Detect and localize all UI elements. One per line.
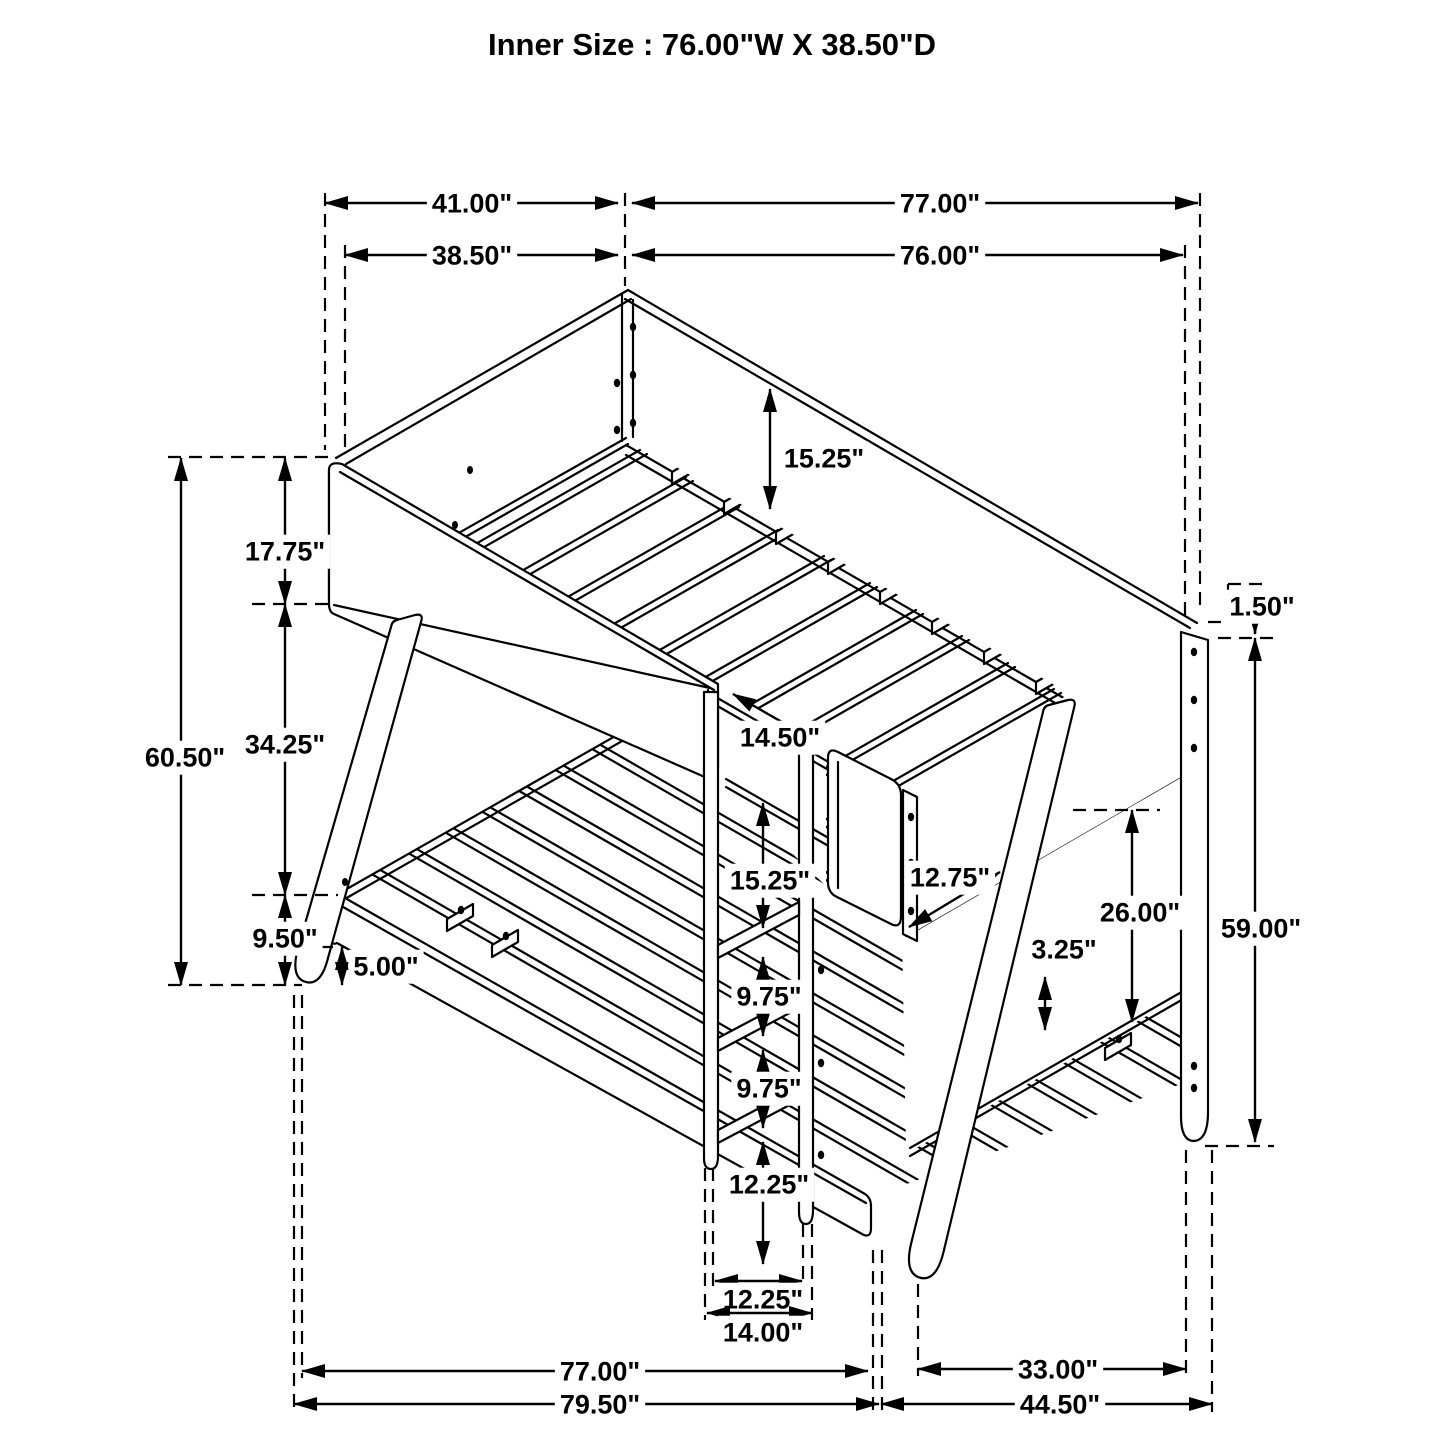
dim-base-length: 77.00" — [302, 1355, 868, 1389]
dim-top-inner-length: 76.00" — [632, 239, 1183, 273]
dim-label-ladder-feet-span: 12.25" — [723, 1285, 803, 1315]
dim-label-base-depth: 33.00" — [1018, 1355, 1098, 1385]
dim-top-outer-width: 41.00" — [325, 187, 618, 221]
dim-label-top-rail-lip: 1.50" — [1229, 592, 1294, 622]
upper-bunk-guard-rail — [828, 750, 901, 925]
dim-label-rung-spacing-upper: 9.75" — [736, 982, 801, 1012]
dim-label-right-side-height: 59.00" — [1221, 914, 1301, 944]
dim-base-depth: 33.00" — [918, 1353, 1186, 1387]
dim-floor-clearance: 5.00" — [342, 947, 424, 985]
dim-label-upper-rail-depth: 15.25" — [784, 444, 864, 474]
dim-label-ladder-lower-section: 12.25" — [729, 1170, 809, 1200]
dim-upper-rail-depth: 15.25" — [770, 389, 869, 509]
dim-bunk-gap-height: 34.25" — [240, 604, 330, 895]
dim-ladder-opening-width: 14.50" — [733, 694, 825, 755]
dim-top-inner-width: 38.50" — [345, 239, 618, 273]
dim-ladder-overall-width: 14.00" — [707, 1313, 812, 1350]
dim-label-base-length: 77.00" — [560, 1357, 640, 1387]
dim-ladder-feet-span: 12.25" — [715, 1281, 808, 1317]
dim-label-floor-clearance: 5.00" — [353, 952, 418, 982]
dim-label-guard-rail-offset: 12.75" — [910, 863, 990, 893]
dim-label-lower-end-panel-height: 26.00" — [1100, 898, 1180, 928]
dim-label-top-outer-width: 41.00" — [432, 189, 512, 219]
dim-base-overall-depth: 44.50" — [881, 1388, 1212, 1422]
dim-overall-height: 60.50" — [140, 458, 230, 985]
dim-label-top-inner-length: 76.00" — [900, 241, 980, 271]
dim-label-rung-spacing-lower: 9.75" — [736, 1074, 801, 1104]
dim-top-rail-lip: 1.50" — [1224, 590, 1299, 634]
dim-label-base-overall-length: 79.50" — [560, 1390, 640, 1420]
dim-label-top-outer-length: 77.00" — [900, 189, 980, 219]
dim-base-overall-length: 79.50" — [294, 1388, 879, 1422]
dim-label-ladder-overall-width: 14.00" — [723, 1318, 803, 1348]
upper-bunk-deck-edge — [714, 696, 832, 848]
dim-top-outer-length: 77.00" — [632, 187, 1198, 221]
dim-label-bunk-gap-height: 34.25" — [245, 730, 325, 760]
diagram-canvas: 41.00" 77.00" 38.50" 76.00" 60.50" 17.75… — [0, 0, 1445, 1445]
dim-right-side-height: 59.00" — [1216, 638, 1306, 1142]
dim-label-overall-height: 60.50" — [145, 743, 225, 773]
dim-upper-rail-height: 17.75" — [240, 458, 330, 604]
dim-label-ladder-top-spacing: 15.25" — [730, 866, 810, 896]
dim-label-ladder-opening-width: 14.50" — [740, 723, 820, 753]
dim-label-top-inner-width: 38.50" — [432, 241, 512, 271]
dim-label-lower-frame-height: 9.50" — [252, 924, 317, 954]
bunk-bed-dimension-diagram: 41.00" 77.00" 38.50" 76.00" 60.50" 17.75… — [0, 0, 1445, 1445]
page-title: Inner Size : 76.00"W X 38.50"D — [488, 27, 936, 62]
dim-label-slat-support-height: 3.25" — [1031, 935, 1096, 965]
dim-label-base-overall-depth: 44.50" — [1020, 1390, 1100, 1420]
dim-label-upper-rail-height: 17.75" — [245, 537, 325, 567]
